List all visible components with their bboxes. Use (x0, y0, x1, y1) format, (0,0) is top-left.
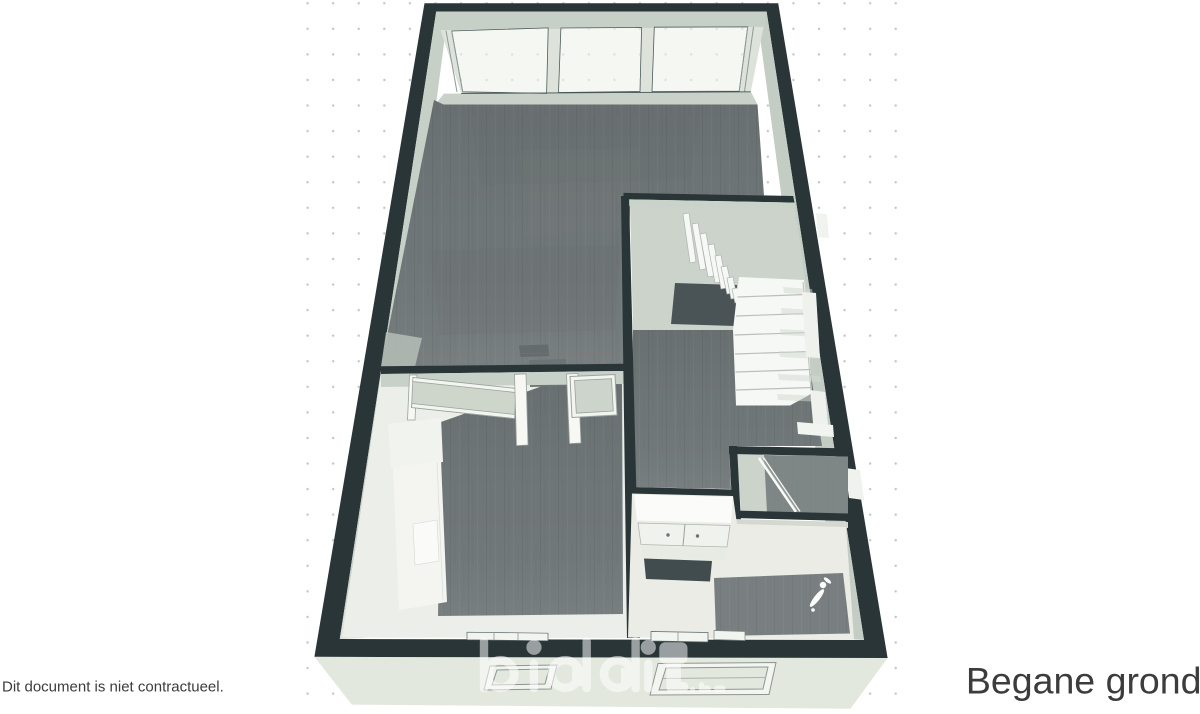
svg-text:Begane grond: Begane grond (966, 660, 1200, 702)
svg-text:Dit document is niet contractu: Dit document is niet contractueel. (2, 679, 224, 696)
